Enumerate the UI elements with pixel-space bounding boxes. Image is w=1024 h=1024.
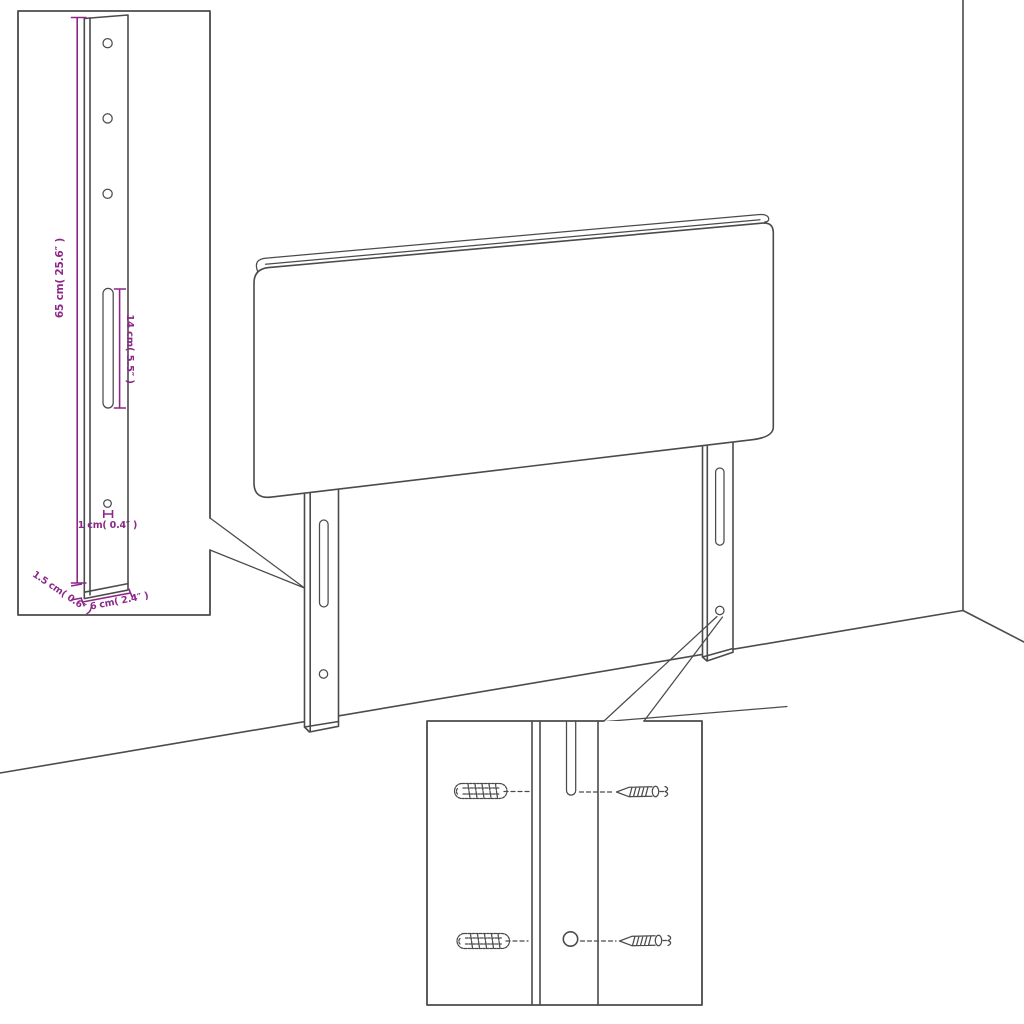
diagram-stage: 65 cm( 25.6″ ) 14 cm( 5.5″ ) 1 cm( 0.4″ …: [0, 0, 1024, 1024]
inset-fill: [427, 721, 702, 1005]
leg-hole-lower: [103, 189, 112, 198]
callout-lines: [210, 518, 723, 721]
mounting-detail-inset: [427, 721, 702, 1005]
leg-hole-top: [103, 39, 112, 48]
slot-dimension-label: 14 cm( 5.5″ ): [124, 314, 135, 383]
leg-side-view: [84, 15, 128, 599]
headboard-diagram: 65 cm( 25.6″ ) 14 cm( 5.5″ ) 1 cm( 0.4″ …: [0, 0, 1024, 1024]
dimension-marks: [71, 18, 133, 607]
hole-dimension-label: 1 cm( 0.4″ ): [78, 520, 137, 531]
height-dimension-label: 65 cm( 25.6″ ): [54, 238, 66, 318]
width-dimension-label: 6 cm( 2.4″ ): [89, 590, 149, 612]
floor-sketch-line: [606, 707, 787, 722]
headboard-panel: [254, 214, 773, 497]
leg-hole-bottom: [104, 500, 112, 508]
left-leg: [305, 466, 339, 732]
headboard-front-fill: [254, 223, 773, 497]
left-callout-wedge: [210, 518, 305, 588]
leg-profile-edges: [84, 15, 128, 595]
leg-dimension-inset: 65 cm( 25.6″ ) 14 cm( 5.5″ ) 1 cm( 0.4″ …: [18, 11, 210, 617]
floor-line-right: [963, 611, 1024, 643]
hole-dimension-tick: [104, 510, 113, 518]
leg-hole-middle: [103, 114, 112, 123]
leg-slot-profile: [103, 288, 113, 408]
